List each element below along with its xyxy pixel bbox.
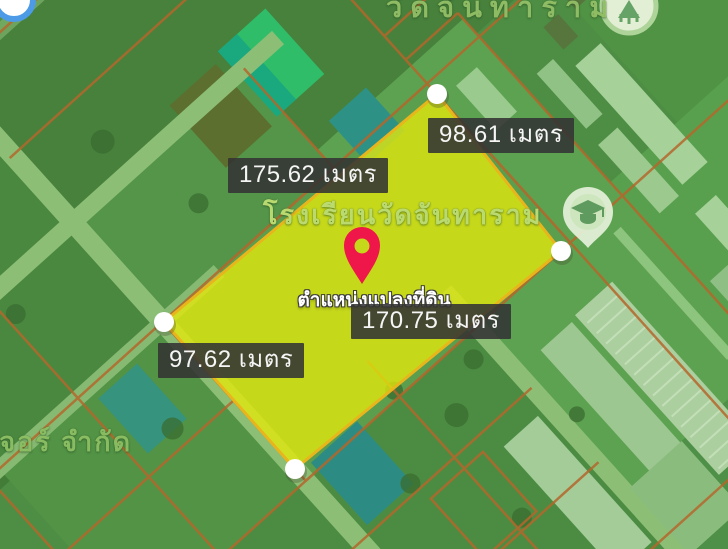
measurement-label-southwest: 97.62 เมตร bbox=[158, 343, 304, 378]
map-label-temple: วัดจันทาราม bbox=[386, 0, 616, 30]
map-canvas bbox=[0, 0, 728, 549]
poi-circle-marker[interactable] bbox=[0, 0, 33, 19]
measurement-label-southeast: 170.75 เมตร bbox=[351, 304, 511, 339]
satellite-map[interactable]: วัดจันทาราม โรงเรียนวัดจันทาราม เจอร์ จำ… bbox=[0, 0, 728, 549]
measurement-label-northeast: 98.61 เมตร bbox=[428, 118, 574, 153]
measurement-label-northwest: 175.62 เมตร bbox=[228, 158, 388, 193]
map-label-company: เจอร์ จำกัด bbox=[0, 420, 132, 463]
map-label-school: โรงเรียนวัดจันทาราม bbox=[263, 193, 543, 236]
